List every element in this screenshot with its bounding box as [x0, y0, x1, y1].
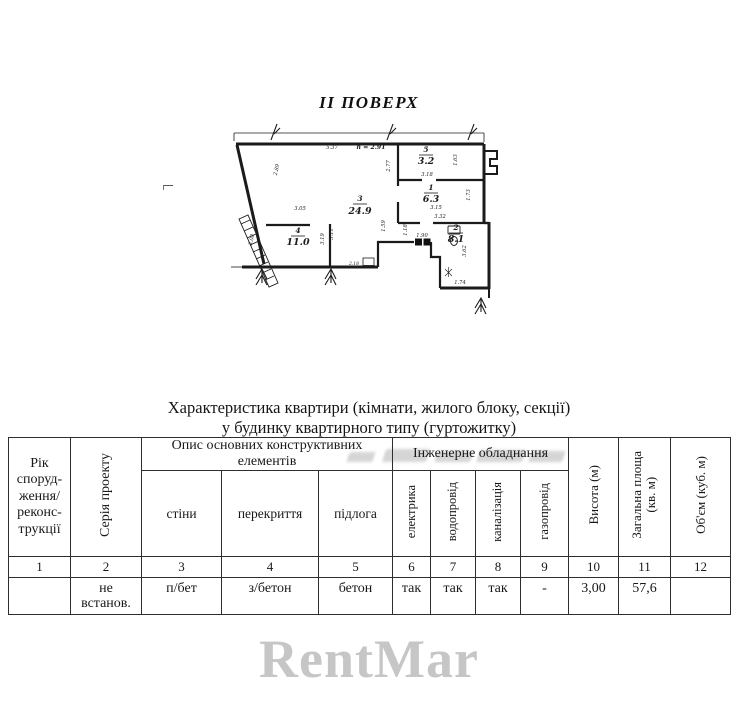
header-series-text: Серія проекту — [98, 453, 113, 537]
plan-height-note: h = 2.91 — [356, 144, 385, 151]
value-volume — [671, 578, 731, 615]
room-number: 2 — [452, 223, 458, 232]
col-number: 7 — [431, 557, 476, 578]
apartment-characteristics-table: Рік споруд- ження/ реконс- трукції Серія… — [8, 437, 731, 615]
header-walls: стіни — [142, 471, 222, 557]
dim-label: 1.18 — [403, 224, 409, 236]
col-number: 10 — [569, 557, 619, 578]
value-electricity: так — [393, 578, 431, 615]
scan-stray-mark — [163, 185, 173, 190]
header-height-text: Висота (м) — [587, 465, 601, 524]
header-year: Рік споруд- ження/ реконс- трукції — [9, 438, 71, 557]
floor-plan-drawing: 3 24.9 4 11.0 5 3.2 1 6.3 2 8.1 5.37 h =… — [226, 118, 508, 316]
col-number: 9 — [521, 557, 569, 578]
rentmar-watermark: RentMar — [0, 628, 738, 690]
dim-label: 5.37 — [326, 145, 338, 151]
value-year — [9, 578, 71, 615]
dim-label: 3.62 — [462, 245, 468, 257]
dim-label: 1.63 — [453, 154, 459, 166]
header-water: водопровід — [431, 471, 476, 557]
col-number: 5 — [319, 557, 393, 578]
dim-label: 1.73 — [466, 189, 472, 201]
dim-label: 3.19 — [320, 233, 326, 245]
room-number: 3 — [357, 194, 362, 203]
col-number: 4 — [222, 557, 319, 578]
room-area: 6.3 — [423, 194, 440, 205]
header-volume-text: Об'єм (куб. м) — [694, 456, 708, 534]
scanned-document-page: II ПОВЕРХ — [0, 0, 738, 713]
value-sewerage: так — [476, 578, 521, 615]
header-series: Серія проекту — [71, 438, 142, 557]
dim-label: 2.18 — [348, 261, 359, 267]
header-gas: газопровід — [521, 471, 569, 557]
dim-label: 3.18 — [421, 172, 433, 178]
table-title-line2: у будинку квартирного типу (гуртожитку) — [0, 418, 738, 438]
floor-plan-title: II ПОВЕРХ — [0, 93, 738, 113]
header-total-area: Загальна площа (кв. м) — [619, 438, 671, 557]
room-number: 4 — [295, 226, 300, 235]
header-volume: Об'єм (куб. м) — [671, 438, 731, 557]
col-number: 1 — [9, 557, 71, 578]
col-number: 11 — [619, 557, 671, 578]
dim-label: 2.89 — [273, 163, 282, 177]
dim-label: 3.05 — [294, 206, 306, 212]
column-numbers-row: 1 2 3 4 5 6 7 8 9 10 11 12 — [9, 557, 731, 578]
dim-label: 3.32 — [434, 214, 446, 220]
dim-label: 3.11 — [329, 228, 335, 240]
room-area: 3.2 — [418, 156, 435, 167]
room-area: 24.9 — [347, 206, 372, 217]
header-gas-text: газопровід — [538, 483, 552, 540]
header-water-text: водопровід — [446, 482, 460, 541]
dim-label: 1.59 — [381, 220, 387, 232]
header-electricity-text: електрика — [405, 485, 419, 538]
value-series: не встанов. — [71, 578, 142, 615]
header-total-area-text: Загальна площа (кв. м) — [630, 451, 658, 539]
value-water: так — [431, 578, 476, 615]
room-number: 5 — [423, 145, 428, 154]
room-labels: 3 24.9 4 11.0 5 3.2 1 6.3 2 8.1 — [286, 145, 464, 248]
col-number: 2 — [71, 557, 142, 578]
value-floor: бетон — [319, 578, 393, 615]
header-ceilings: перекриття — [222, 471, 319, 557]
value-total-area: 57,6 — [619, 578, 671, 615]
header-engineering-group: Інженерне обладнання — [393, 438, 569, 471]
dim-label: 1.74 — [454, 280, 466, 286]
dim-label: 3.08 — [248, 233, 256, 246]
col-number: 3 — [142, 557, 222, 578]
header-sewerage: каналізація — [476, 471, 521, 557]
header-electricity: електрика — [393, 471, 431, 557]
value-walls: п/бет — [142, 578, 222, 615]
dim-label: 2.77 — [386, 160, 392, 173]
header-height: Висота (м) — [569, 438, 619, 557]
header-sewerage-text: каналізація — [491, 482, 505, 542]
table-title-line1: Характеристика квартири (кімнати, жилого… — [0, 398, 738, 418]
col-number: 12 — [671, 557, 731, 578]
dim-label: 3.15 — [430, 205, 442, 211]
value-gas: - — [521, 578, 569, 615]
room-area: 11.0 — [286, 237, 310, 248]
data-row: не встанов. п/бет з/бетон бетон так так … — [9, 578, 731, 615]
dim-label: 1.90 — [416, 233, 428, 239]
value-ceilings: з/бетон — [222, 578, 319, 615]
col-number: 6 — [393, 557, 431, 578]
room-area: 8.1 — [448, 234, 465, 245]
room-number: 1 — [428, 183, 433, 192]
table-title: Характеристика квартири (кімнати, жилого… — [0, 398, 738, 438]
col-number: 8 — [476, 557, 521, 578]
value-height: 3,00 — [569, 578, 619, 615]
header-construct-group: Опис основних конструктивних елементів — [142, 438, 393, 471]
header-floor: підлога — [319, 471, 393, 557]
